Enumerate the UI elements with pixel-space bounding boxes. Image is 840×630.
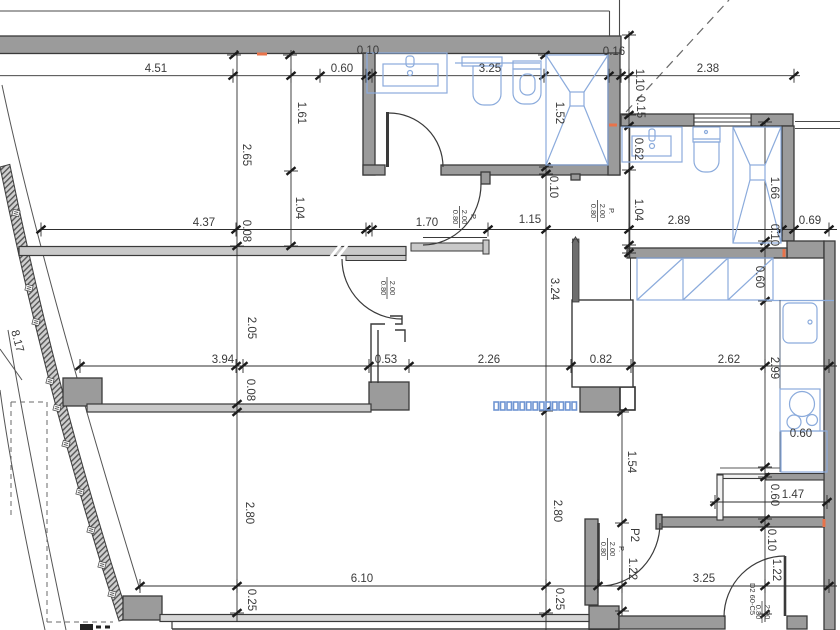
svg-text:0.60: 0.60 — [331, 63, 353, 75]
svg-text:3.24: 3.24 — [548, 278, 560, 301]
svg-text:0.10: 0.10 — [765, 529, 777, 551]
svg-text:2.38: 2.38 — [697, 63, 719, 75]
svg-text:1.54: 1.54 — [625, 451, 637, 474]
svg-text:2.26: 2.26 — [478, 354, 500, 366]
svg-text:1.04: 1.04 — [632, 199, 644, 222]
svg-text:1.10: 1.10 — [633, 69, 645, 91]
svg-text:0.60: 0.60 — [768, 484, 780, 506]
svg-text:2.00: 2.00 — [763, 605, 772, 620]
svg-text:1.66: 1.66 — [768, 177, 780, 199]
svg-text:0.25: 0.25 — [245, 589, 257, 611]
svg-text:2.00: 2.00 — [598, 204, 607, 219]
svg-text:2.00: 2.00 — [388, 281, 397, 296]
svg-text:1.22: 1.22 — [770, 559, 782, 581]
svg-text:0.10: 0.10 — [547, 176, 559, 198]
svg-text:1.15: 1.15 — [519, 214, 541, 226]
svg-text:0.16: 0.16 — [603, 46, 625, 58]
svg-text:0.60: 0.60 — [790, 428, 812, 440]
svg-text:0.08: 0.08 — [240, 220, 252, 242]
svg-text:0.80: 0.80 — [599, 542, 608, 557]
svg-text:P.: P. — [469, 214, 478, 220]
svg-text:2.99: 2.99 — [768, 357, 780, 379]
svg-text:1.61: 1.61 — [295, 102, 307, 124]
svg-text:0.10: 0.10 — [768, 224, 780, 246]
svg-text:4.51: 4.51 — [145, 63, 167, 75]
svg-text:3.94: 3.94 — [212, 354, 235, 366]
svg-text:3.25: 3.25 — [693, 573, 715, 585]
svg-text:2.05: 2.05 — [245, 317, 257, 339]
svg-text:3.25: 3.25 — [479, 63, 501, 75]
svg-text:0.60: 0.60 — [753, 266, 765, 288]
svg-text:1.04: 1.04 — [293, 197, 305, 220]
svg-text:P.: P. — [617, 546, 626, 552]
svg-text:0.15: 0.15 — [634, 96, 646, 118]
svg-text:P2: P2 — [628, 528, 640, 542]
svg-text:1.22: 1.22 — [626, 558, 638, 580]
svg-text:0.62: 0.62 — [632, 138, 644, 160]
svg-text:0.69: 0.69 — [799, 215, 821, 227]
svg-text:2.00: 2.00 — [460, 210, 469, 225]
svg-text:1.70: 1.70 — [416, 217, 438, 229]
svg-text:1.52: 1.52 — [553, 102, 565, 124]
svg-text:P.: P. — [607, 208, 616, 214]
svg-text:1.47: 1.47 — [782, 489, 804, 501]
svg-text:0.53: 0.53 — [375, 354, 397, 366]
svg-text:2.80: 2.80 — [243, 502, 255, 524]
svg-text:2.62: 2.62 — [718, 354, 740, 366]
svg-text:0.10: 0.10 — [357, 45, 379, 57]
svg-text:2.00: 2.00 — [608, 542, 617, 557]
svg-text:4.37: 4.37 — [193, 217, 215, 229]
svg-text:2.89: 2.89 — [668, 215, 690, 227]
svg-text:2.80: 2.80 — [551, 500, 563, 522]
svg-text:6.10: 6.10 — [351, 573, 373, 585]
svg-text:0.80: 0.80 — [589, 204, 598, 219]
svg-text:0.25: 0.25 — [553, 588, 565, 610]
svg-text:0.82: 0.82 — [590, 354, 612, 366]
svg-text:2.65: 2.65 — [240, 144, 252, 166]
svg-text:0.08: 0.08 — [244, 379, 256, 401]
svg-text:0.80: 0.80 — [451, 210, 460, 225]
